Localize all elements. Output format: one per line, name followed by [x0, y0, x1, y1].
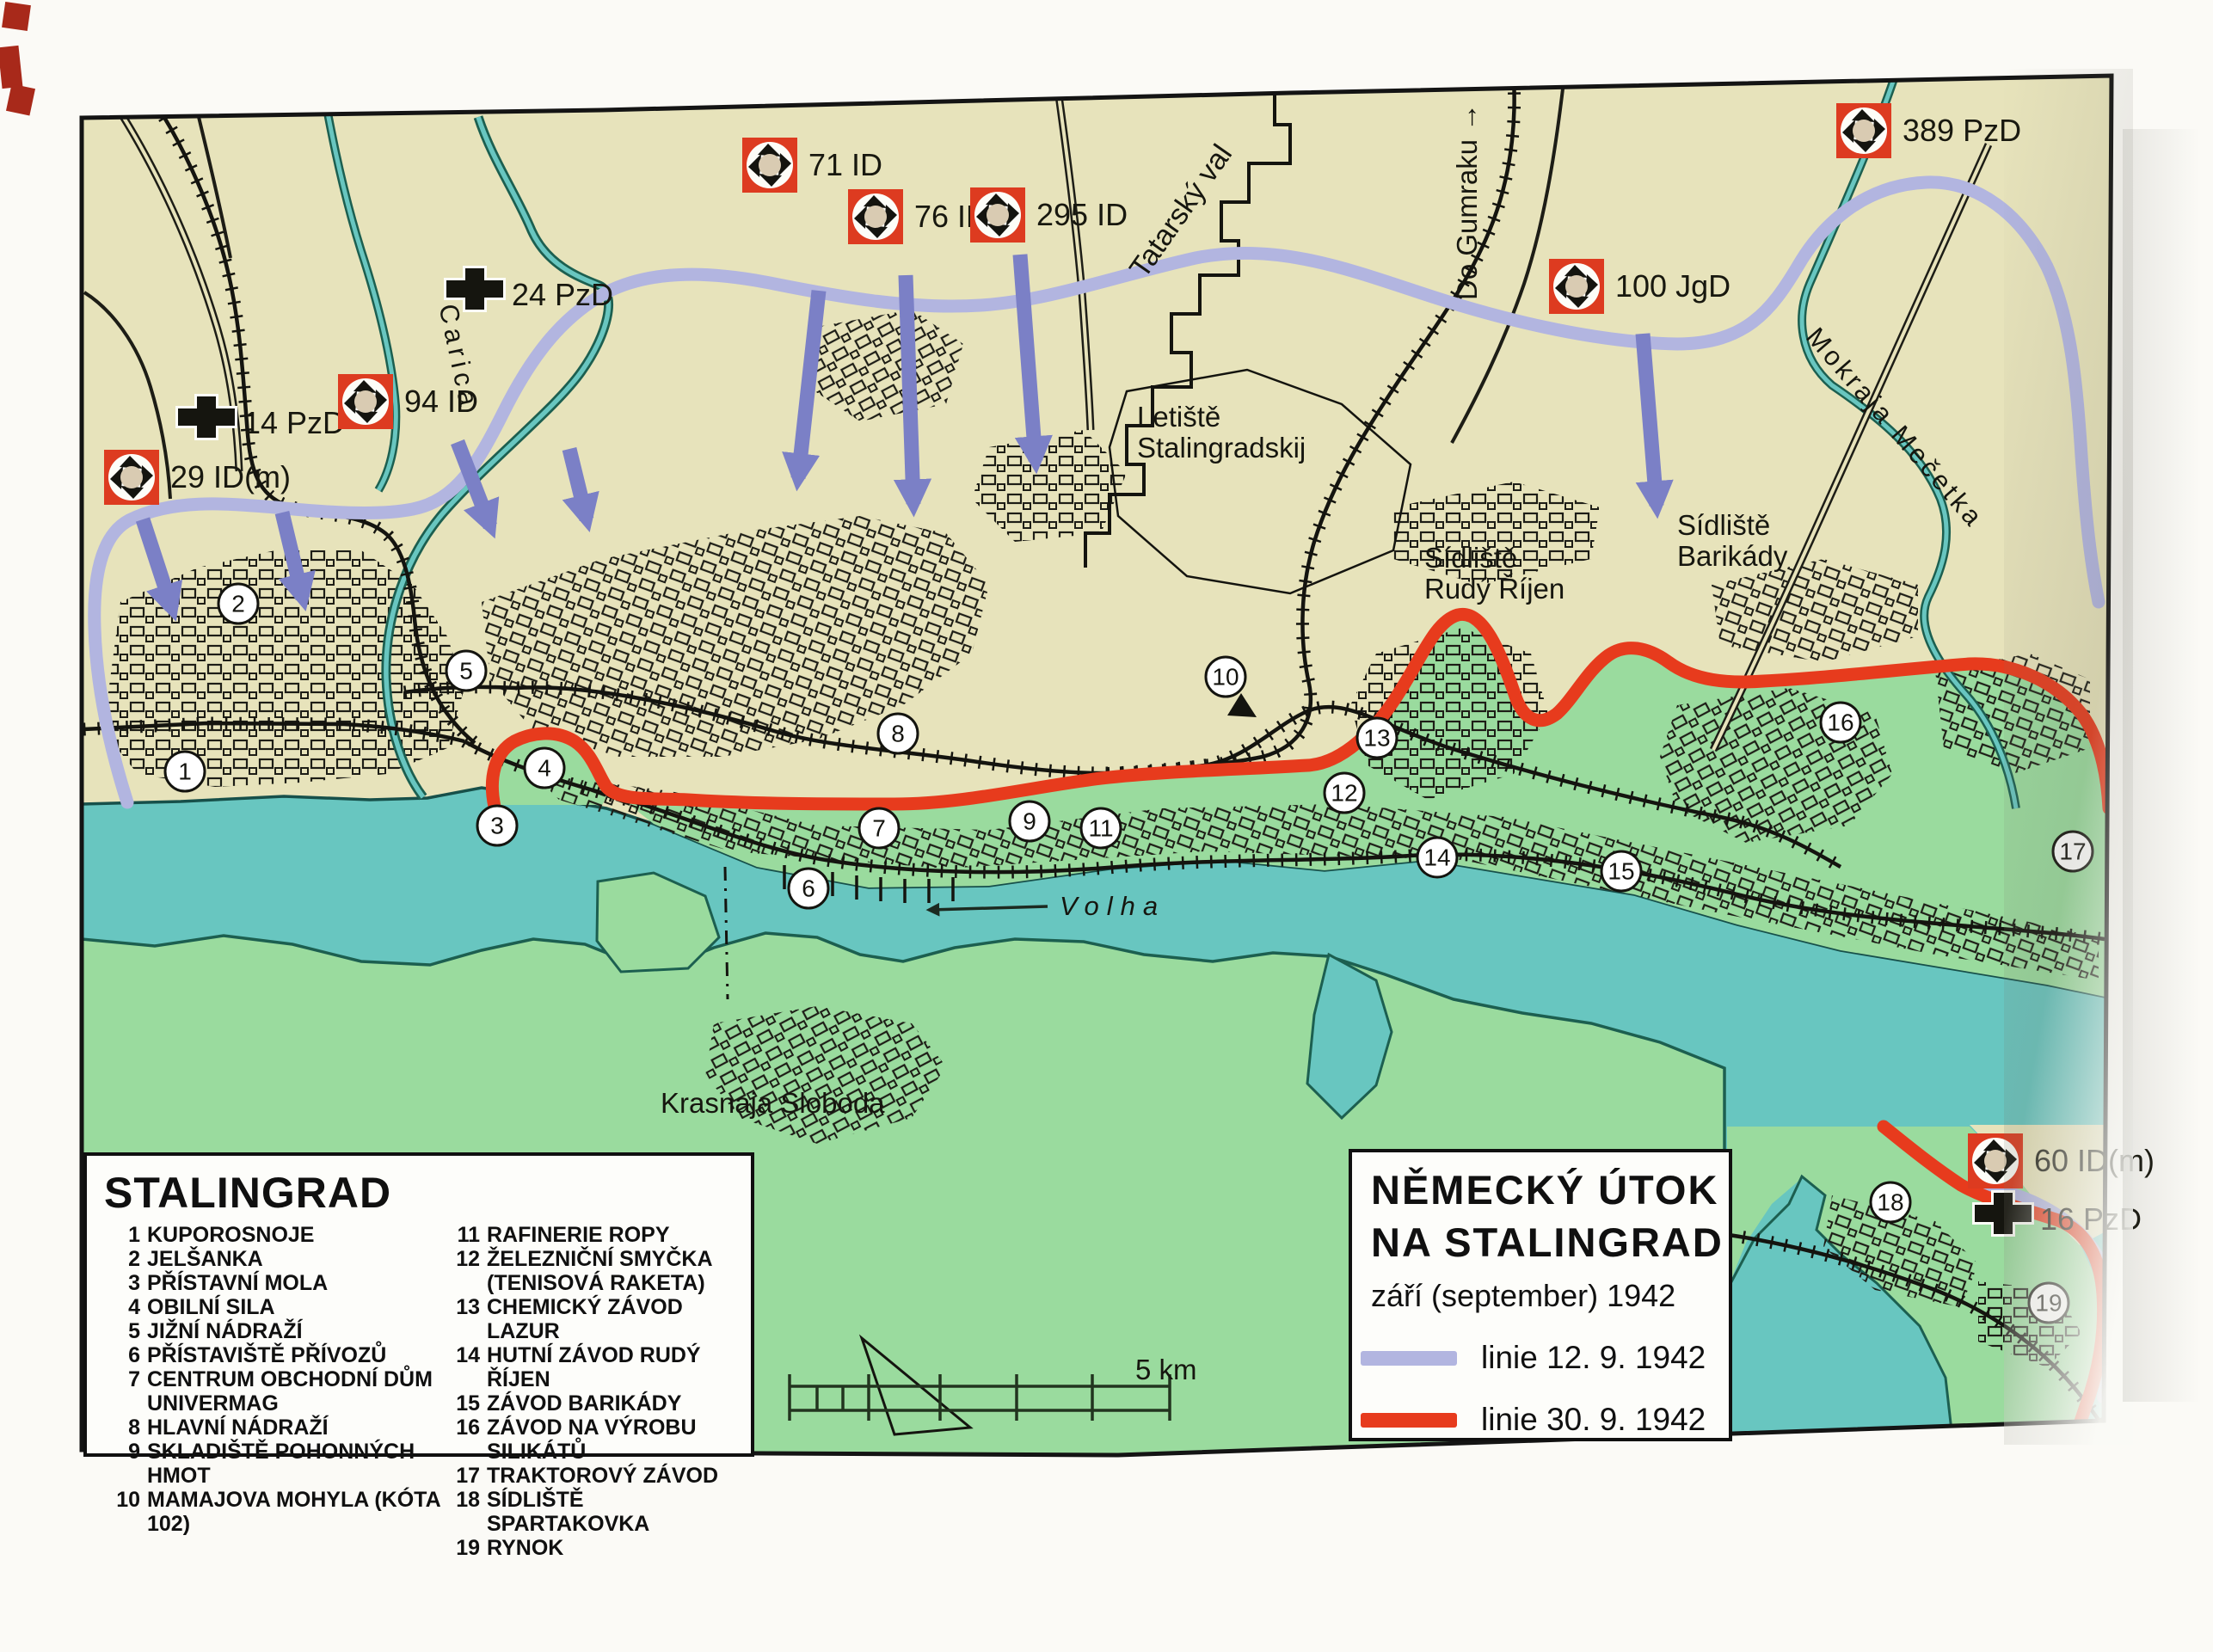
- legend-list-left: 1KUPOROSNOJE2JELŠANKA3PŘÍSTAVNÍ MOLA4OBI…: [104, 1223, 444, 1560]
- place-marker-1: 1: [164, 751, 206, 793]
- legend-item: 12ŽELEZNIČNÍ SMYČKA: [444, 1247, 736, 1271]
- place-marker-8: 8: [877, 713, 919, 755]
- legend-item: 15ZÁVOD BARIKÁDY: [444, 1391, 736, 1416]
- place-marker-15: 15: [1601, 851, 1643, 893]
- place-marker-9: 9: [1009, 801, 1051, 843]
- panzer-division-icon: [443, 265, 503, 325]
- legend-item: 19RYNOK: [444, 1536, 736, 1560]
- infantry-division-icon: [845, 187, 906, 247]
- legend-item: 18SÍDLIŠTĚ SPARTAKOVKA: [444, 1488, 736, 1536]
- place-marker-4: 4: [524, 747, 566, 789]
- place-marker-7: 7: [858, 808, 901, 850]
- front-line-legend-row: linie 30. 9. 1942: [1361, 1402, 1729, 1438]
- place-marker-5: 5: [446, 650, 488, 692]
- unit-label: 71 ID: [808, 147, 882, 183]
- infantry-division-icon: [101, 447, 162, 507]
- unit-label: 14 PzD: [243, 405, 345, 441]
- legend-item: 2JELŠANKA: [104, 1247, 444, 1271]
- line-label: linie 12. 9. 1942: [1481, 1340, 1706, 1376]
- map-subtitle: září (september) 1942: [1359, 1278, 1729, 1314]
- map-title-line2: NA STALINGRAD: [1371, 1219, 1729, 1266]
- legend-list-right: 11RAFINERIE ROPY12ŽELEZNIČNÍ SMYČKA(TENI…: [444, 1223, 736, 1560]
- front-line-legend-row: linie 12. 9. 1942: [1361, 1340, 1729, 1376]
- legend-item: 9SKLADIŠTĚ POHONNÝCH HMOT: [104, 1440, 444, 1488]
- map-title-line1: NĚMECKÝ ÚTOK: [1371, 1166, 1729, 1213]
- legend-item: 1KUPOROSNOJE: [104, 1223, 444, 1247]
- legend-item: 5JIŽNÍ NÁDRAŽÍ: [104, 1319, 444, 1343]
- legend-item: 17TRAKTOROVÝ ZÁVOD: [444, 1464, 736, 1488]
- infantry-division-icon: [740, 135, 800, 195]
- map-title-box: NĚMECKÝ ÚTOK NA STALINGRAD září (septemb…: [1349, 1149, 1732, 1441]
- unit-label: 60 ID(m): [2034, 1143, 2155, 1179]
- scanned-map-page: Volha Krasnaja Sloboda Letiště Stalingra…: [0, 0, 2213, 1652]
- place-marker-6: 6: [788, 868, 830, 910]
- infantry-division-icon: [968, 185, 1028, 245]
- place-marker-16: 16: [1820, 702, 1862, 744]
- legend-item: 14HUTNÍ ZÁVOD RUDÝ ŘÍJEN: [444, 1343, 736, 1391]
- legend-item: 7CENTRUM OBCHODNÍ DŮM UNIVERMAG: [104, 1367, 444, 1416]
- page-edge-red-fragment: [2, 2, 31, 31]
- panzer-division-icon: [175, 393, 235, 453]
- unit-label: 295 ID: [1036, 197, 1128, 233]
- infantry-division-icon: [1546, 256, 1607, 316]
- panzer-division-icon: [1971, 1189, 2032, 1250]
- legend-item: 13CHEMICKÝ ZÁVOD LAZUR: [444, 1295, 736, 1343]
- line-swatch: [1361, 1351, 1457, 1366]
- place-marker-17: 17: [2052, 831, 2094, 873]
- unit-label: 389 PzD: [1903, 113, 2021, 149]
- legend-item: 8HLAVNÍ NÁDRAŽÍ: [104, 1416, 444, 1440]
- place-marker-3: 3: [476, 805, 519, 847]
- legend-item: 11RAFINERIE ROPY: [444, 1223, 736, 1247]
- place-marker-2: 2: [218, 583, 260, 625]
- stalingrad-legend-box: STALINGRAD 1KUPOROSNOJE2JELŠANKA3PŘÍSTAV…: [83, 1152, 754, 1457]
- line-swatch: [1361, 1413, 1457, 1428]
- front-line-legend: linie 12. 9. 1942linie 30. 9. 1942: [1352, 1340, 1729, 1438]
- legend-item: 4OBILNÍ SILA: [104, 1295, 444, 1319]
- legend-item: (TENISOVÁ RAKETA): [444, 1271, 736, 1295]
- attack-arrow: [906, 275, 913, 504]
- legend-item: 6PŘÍSTAVIŠTĚ PŘÍVOZŮ: [104, 1343, 444, 1367]
- place-marker-13: 13: [1356, 717, 1398, 759]
- infantry-division-icon: [1834, 101, 1894, 161]
- legend-item: 10MAMAJOVA MOHYLA (KÓTA 102): [104, 1488, 444, 1536]
- legend-item: 16ZÁVOD NA VÝROBU SILIKÁTŮ: [444, 1416, 736, 1464]
- line-label: linie 30. 9. 1942: [1481, 1402, 1706, 1438]
- legend-item: 3PŘÍSTAVNÍ MOLA: [104, 1271, 444, 1295]
- legend-title: STALINGRAD: [104, 1168, 751, 1218]
- infantry-division-icon: [335, 372, 396, 432]
- infantry-division-icon: [1965, 1131, 2026, 1191]
- place-marker-12: 12: [1324, 772, 1366, 814]
- place-marker-10: 10: [1205, 656, 1247, 698]
- place-marker-19: 19: [2028, 1282, 2070, 1324]
- place-marker-18: 18: [1870, 1182, 1912, 1224]
- unit-label: 24 PzD: [512, 277, 613, 313]
- unit-label: 94 ID: [404, 384, 478, 420]
- place-marker-14: 14: [1417, 837, 1459, 879]
- place-marker-11: 11: [1080, 808, 1122, 850]
- unit-label: 16 PzD: [2040, 1201, 2142, 1237]
- unit-label: 100 JgD: [1615, 268, 1730, 304]
- unit-label: 29 ID(m): [170, 459, 291, 495]
